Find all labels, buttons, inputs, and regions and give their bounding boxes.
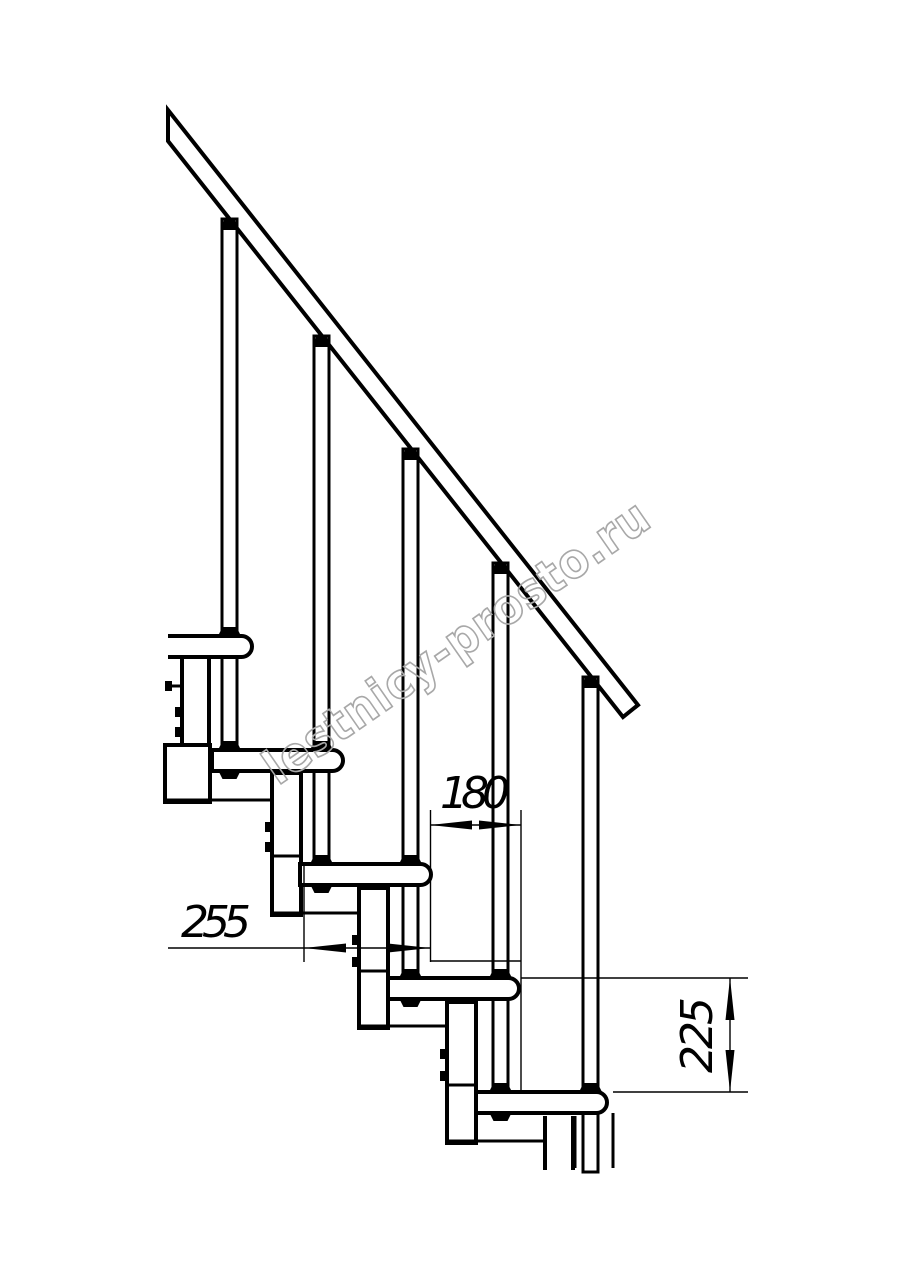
module-bolt [175,707,184,717]
module-3 [352,888,447,1028]
module-bolt [265,822,274,832]
tread-3 [300,864,431,885]
tread-1 [168,636,252,657]
baluster-nut [490,1113,512,1121]
plate-bolt [165,681,172,691]
module-bolt [440,1071,449,1081]
arrowhead-up [726,978,735,1020]
module-1 [165,657,272,802]
module-bolt [175,727,184,737]
baluster-3 [403,449,418,978]
tread-5 [476,1092,607,1113]
module-2 [265,773,359,915]
arrowhead-down [726,1050,735,1092]
module-bolt [352,957,361,967]
module-bolt [265,842,274,852]
module-bolt [352,935,361,945]
dimension-rise: 225 [521,978,748,1092]
tread-4 [388,978,519,999]
baluster-nut [311,885,333,893]
dimension-depth-label: 255 [181,897,251,948]
dimension-rise-label: 225 [672,997,723,1073]
arrowhead-left [304,944,346,953]
dimension-run-label: 180 [440,768,510,819]
staircase-drawing: 180 255 225 lestnicy-prosto.ru [0,0,914,1280]
baluster-2 [314,336,329,864]
arrowhead-left [430,821,472,830]
module-bolt [440,1049,449,1059]
drawing-page: 180 255 225 lestnicy-prosto.ru [0,0,914,1280]
baluster-1 [222,219,237,750]
module-5 [545,1113,613,1170]
baluster-nut [219,771,241,779]
baluster-nut [400,999,422,1007]
